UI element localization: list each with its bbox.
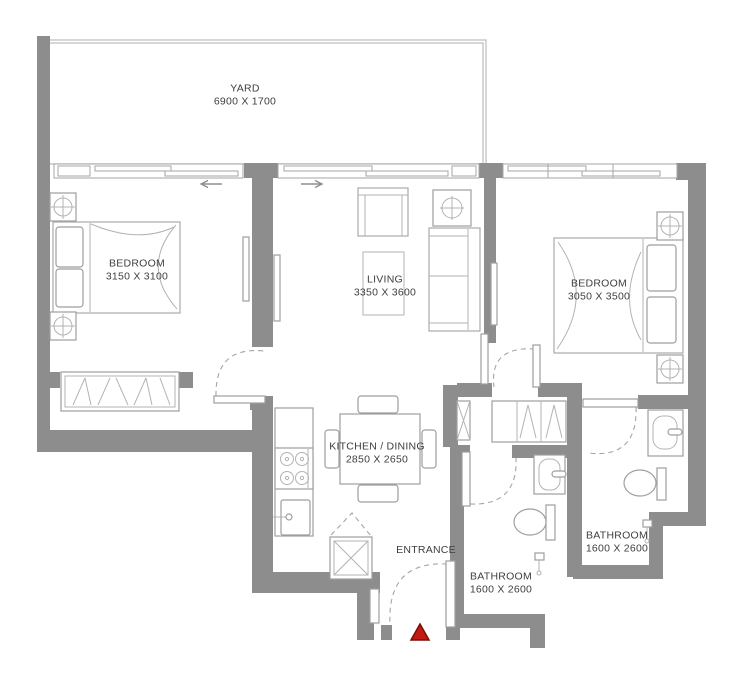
entrance-text: ENTRANCE: [396, 544, 456, 557]
room-name: BATHROOM: [586, 530, 648, 543]
room-name: YARD: [214, 83, 276, 96]
room-dims: 6900 X 1700: [214, 95, 276, 108]
hall-wardrobe-symbol: [492, 401, 566, 442]
room-dims: 1600 X 2600: [586, 542, 648, 555]
room-dims: 3150 X 3100: [106, 270, 168, 283]
floor-plan-drawing: [0, 0, 738, 680]
nightstand-lamp-symbol: [657, 212, 683, 240]
slide-arrow-left-icon: [201, 181, 222, 188]
room-dims: 2850 X 2650: [329, 453, 425, 466]
door-bathroom-right: [583, 399, 638, 454]
room-name: BEDROOM: [568, 278, 630, 291]
window-band: [54, 164, 677, 178]
room-dims: 3050 X 3500: [568, 290, 630, 303]
armchair-symbol: [358, 188, 408, 236]
room-dims: 1600 X 2600: [470, 583, 532, 596]
room-label-living: LIVING 3350 X 3600: [354, 274, 416, 299]
room-label-bathroom-right: BATHROOM 1600 X 2600: [586, 530, 648, 555]
nightstand-lamp-symbol: [657, 355, 683, 383]
floor-plan-canvas: YARD 6900 X 1700 BEDROOM 3150 X 3100 LIV…: [0, 0, 738, 680]
room-dims: 3350 X 3600: [354, 286, 416, 299]
nightstand-lamp-symbol: [50, 312, 76, 340]
entrance-side-panel: [370, 589, 379, 623]
room-name: KITCHEN / DINING: [329, 441, 425, 454]
toilet-symbol: [624, 468, 666, 500]
room-label-bedroom-left: BEDROOM 3150 X 3100: [106, 258, 168, 283]
room-name: LIVING: [354, 274, 416, 287]
entrance-triangle: [411, 624, 429, 640]
door-entrance: [390, 561, 455, 627]
vanity-sink-symbol: [534, 455, 566, 494]
entrance-marker-icon: [411, 624, 429, 640]
entrance-label: ENTRANCE: [396, 544, 456, 557]
door-bedroom-right-wing: [494, 345, 540, 387]
room-name: BEDROOM: [106, 258, 168, 271]
room-label-yard: YARD 6900 X 1700: [214, 83, 276, 108]
lamp-table-symbol: [433, 190, 471, 226]
door-bathroom-center: [462, 452, 516, 506]
shaft-box-symbol: [457, 401, 470, 440]
nightstand-lamp-symbol: [50, 193, 76, 221]
room-name: BATHROOM: [470, 571, 532, 584]
room-label-kitchen-dining: KITCHEN / DINING 2850 X 2650: [329, 441, 425, 466]
room-label-bedroom-right: BEDROOM 3050 X 3500: [568, 278, 630, 303]
door-bedroom-left: [214, 351, 265, 403]
vanity-sink-symbol: [648, 410, 683, 456]
toilet-symbol: [514, 505, 555, 540]
stove-symbol: [275, 448, 313, 489]
room-label-bathroom-center: BATHROOM 1600 X 2600: [470, 571, 532, 596]
laundry-box-symbol: [330, 513, 372, 579]
wardrobe-left-symbol: [61, 372, 179, 411]
sofa-symbol: [429, 228, 480, 331]
shower-mixer-icon: [535, 553, 544, 575]
slide-arrow-right-icon: [301, 181, 322, 188]
